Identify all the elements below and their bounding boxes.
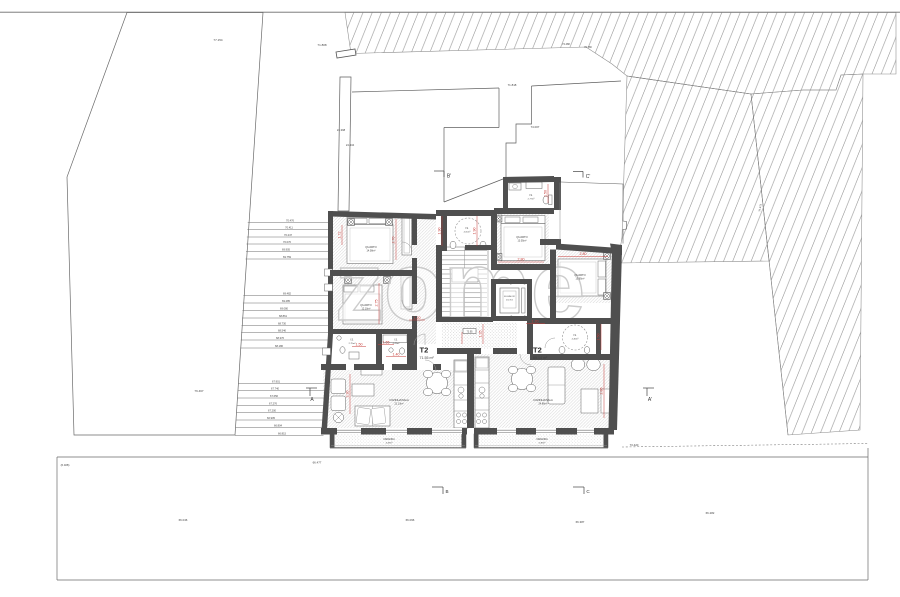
svg-text:2.75: 2.75 (375, 300, 379, 307)
svg-text:66.477: 66.477 (313, 461, 322, 465)
svg-text:14.08m²: 14.08m² (367, 249, 376, 252)
svg-text:1.20: 1.20 (414, 316, 421, 320)
svg-text:1.50: 1.50 (597, 334, 601, 341)
svg-text:66.282: 66.282 (706, 511, 715, 515)
svg-text:4.46m²: 4.46m² (572, 337, 579, 340)
svg-text:4.28m²: 4.28m² (386, 441, 393, 444)
svg-text:67.656: 67.656 (270, 394, 278, 398)
svg-text:74.488: 74.488 (562, 43, 570, 46)
svg-text:QUARTO: QUARTO (360, 303, 371, 307)
svg-text:4.38m²: 4.38m² (539, 441, 546, 444)
svg-text:1.50: 1.50 (544, 190, 548, 197)
svg-text:ELEVADOR: ELEVADOR (504, 295, 515, 298)
svg-text:13.05m²: 13.05m² (518, 239, 527, 242)
svg-text:VARANDA: VARANDA (383, 438, 395, 441)
svg-text:70.411: 70.411 (285, 225, 293, 229)
svg-text:C': C' (586, 174, 591, 180)
svg-text:70.476: 70.476 (286, 218, 294, 222)
svg-text:67.740: 67.740 (271, 386, 279, 390)
svg-text:66.815: 66.815 (278, 431, 286, 435)
svg-text:68.376: 68.376 (276, 336, 284, 340)
svg-text:66.387: 66.387 (576, 520, 585, 524)
svg-text:2.77m²: 2.77m² (528, 197, 535, 200)
svg-text:VARANDA: VARANDA (536, 438, 548, 441)
svg-text:I.S.: I.S. (529, 194, 533, 197)
svg-text:66.096: 66.096 (406, 518, 415, 522)
svg-text:4.43m²: 4.43m² (393, 342, 400, 345)
svg-text:74.007: 74.007 (531, 125, 540, 129)
svg-text:69.285: 69.285 (282, 299, 290, 303)
svg-text:2.80: 2.80 (518, 258, 525, 262)
svg-text:1.35: 1.35 (479, 331, 483, 338)
svg-text:I.S.: I.S. (573, 334, 577, 337)
svg-text:71.808: 71.808 (317, 43, 327, 47)
svg-text:1.40: 1.40 (393, 353, 400, 357)
svg-text:3.30: 3.30 (346, 391, 350, 398)
svg-text:10.95m²: 10.95m² (576, 277, 585, 280)
svg-text:A': A' (648, 397, 652, 403)
svg-text:I.S.: I.S. (465, 227, 469, 230)
svg-text:67.901: 67.901 (272, 379, 280, 383)
svg-text:1.20: 1.20 (532, 320, 539, 324)
svg-text:68.186: 68.186 (275, 344, 283, 348)
svg-text:1.72: 1.72 (338, 232, 342, 239)
svg-text:24.398: 24.398 (337, 128, 346, 132)
svg-text:70.247: 70.247 (284, 233, 292, 237)
svg-text:68.861: 68.861 (279, 314, 287, 318)
svg-text:T2: T2 (420, 346, 429, 355)
svg-text:T2: T2 (533, 346, 542, 355)
svg-text:24.86m²: 24.86m² (539, 402, 548, 405)
svg-text:B: B (445, 489, 448, 494)
svg-text:1.65: 1.65 (383, 341, 390, 345)
svg-text:68.546: 68.546 (278, 328, 286, 332)
svg-text:2.70: 2.70 (392, 237, 396, 244)
svg-text:76.467: 76.467 (194, 389, 204, 393)
svg-text:COZINHA/SALA: COZINHA/SALA (533, 398, 553, 402)
svg-text:69.759: 69.759 (283, 255, 291, 259)
svg-text:21.13m²: 21.13m² (395, 402, 404, 405)
svg-text:69.482: 69.482 (283, 291, 291, 295)
svg-text:71.55 m²: 71.55 m² (420, 356, 435, 360)
svg-text:77.154: 77.154 (213, 38, 223, 42)
svg-text:QUARTO: QUARTO (365, 245, 376, 249)
svg-text:67.200: 67.200 (268, 408, 276, 412)
svg-text:69.080: 69.080 (280, 306, 288, 310)
svg-text:2.79m²: 2.79m² (349, 342, 356, 345)
svg-text:72.780: 72.780 (584, 46, 592, 49)
svg-text:4.05m²: 4.05m² (464, 230, 471, 233)
svg-text:73.420: 73.420 (630, 443, 639, 447)
svg-text:68.730: 68.730 (278, 321, 286, 325)
svg-text:70.070: 70.070 (283, 240, 291, 244)
svg-text:2.85: 2.85 (600, 388, 604, 395)
svg-text:B': B' (447, 174, 451, 180)
svg-text:I.S.: I.S. (350, 339, 354, 342)
svg-text:67.276: 67.276 (269, 401, 277, 405)
svg-text:66.046: 66.046 (179, 518, 188, 522)
svg-text:12.10m²: 12.10m² (362, 307, 371, 310)
svg-text:450 KG: 450 KG (506, 300, 513, 302)
svg-text:I.S.: I.S. (394, 339, 398, 342)
svg-text:1.90: 1.90 (473, 228, 477, 235)
svg-text:66.905: 66.905 (267, 416, 275, 420)
svg-text:65.14 m²: 65.14 m² (533, 356, 548, 360)
svg-text:71.818: 71.818 (508, 83, 517, 87)
svg-text:COZINHA/SALA: COZINHA/SALA (389, 398, 409, 402)
svg-text:1.50: 1.50 (356, 343, 363, 347)
svg-text:69.905: 69.905 (282, 247, 290, 251)
svg-text:(6.408): (6.408) (61, 463, 70, 467)
svg-text:24.434: 24.434 (346, 143, 355, 147)
svg-text:QUARTO: QUARTO (516, 235, 527, 239)
svg-text:2.80: 2.80 (580, 252, 587, 256)
svg-text:QUARTO: QUARTO (574, 273, 585, 277)
svg-text:1.90: 1.90 (438, 228, 442, 235)
svg-text:66.804: 66.804 (274, 423, 282, 427)
